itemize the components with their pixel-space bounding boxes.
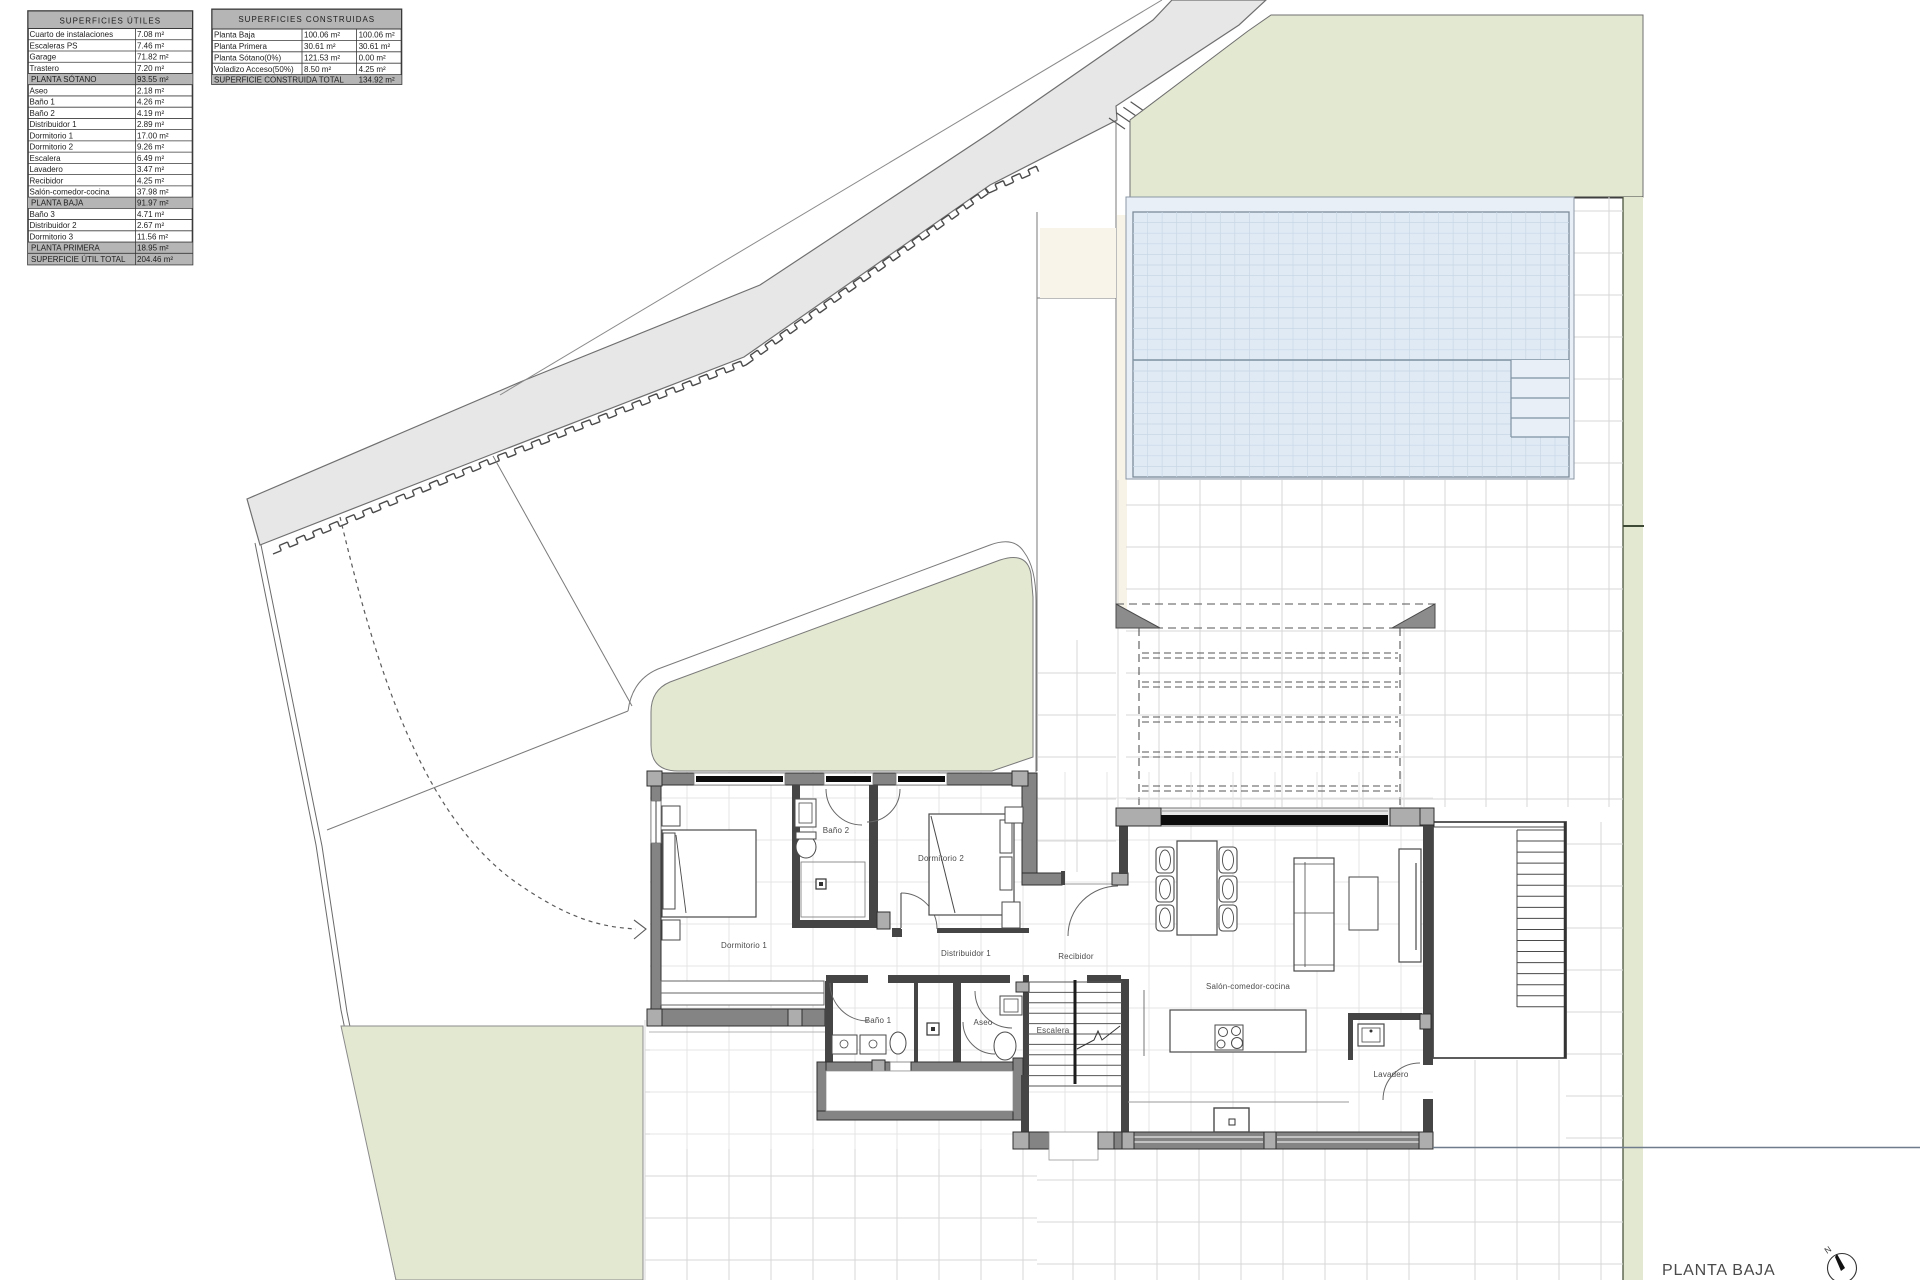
- svg-text:30.61 m²: 30.61 m²: [359, 42, 391, 51]
- svg-text:7.08 m²: 7.08 m²: [137, 30, 164, 39]
- svg-text:Distribuidor 1: Distribuidor 1: [30, 120, 78, 129]
- svg-text:Escalera: Escalera: [30, 154, 62, 163]
- svg-text:PLANTA PRIMERA: PLANTA PRIMERA: [31, 244, 100, 253]
- svg-text:0.00 m²: 0.00 m²: [359, 53, 386, 62]
- svg-text:Garage: Garage: [30, 53, 57, 62]
- svg-text:17.00 m²: 17.00 m²: [137, 131, 169, 140]
- svg-text:71.82 m²: 71.82 m²: [137, 53, 169, 62]
- svg-text:Voladizo Acceso(50%): Voladizo Acceso(50%): [214, 65, 294, 74]
- svg-text:6.49 m²: 6.49 m²: [137, 154, 164, 163]
- svg-text:Escaleras PS: Escaleras PS: [30, 41, 78, 50]
- svg-text:Dormitorio 3: Dormitorio 3: [30, 232, 74, 241]
- svg-text:4.25 m²: 4.25 m²: [137, 176, 164, 185]
- svg-text:100.06 m²: 100.06 m²: [359, 31, 395, 40]
- svg-text:100.06 m²: 100.06 m²: [304, 31, 340, 40]
- svg-text:PLANTA BAJA: PLANTA BAJA: [1662, 1262, 1775, 1279]
- svg-text:Distribuidor 1: Distribuidor 1: [941, 949, 991, 958]
- svg-text:11.56 m²: 11.56 m²: [137, 232, 168, 241]
- svg-text:Escalera: Escalera: [1037, 1026, 1070, 1035]
- svg-text:Dormitorio 2: Dormitorio 2: [918, 854, 964, 863]
- svg-text:SUPERFICIE ÚTIL TOTAL: SUPERFICIE ÚTIL TOTAL: [31, 255, 126, 264]
- svg-text:Recibidor: Recibidor: [30, 176, 64, 185]
- svg-text:37.98 m²: 37.98 m²: [137, 188, 169, 197]
- svg-text:Planta Baja: Planta Baja: [214, 31, 255, 40]
- svg-text:204.46 m²: 204.46 m²: [137, 255, 173, 264]
- svg-text:7.20 m²: 7.20 m²: [137, 64, 164, 73]
- svg-text:PLANTA SÓTANO: PLANTA SÓTANO: [31, 75, 97, 84]
- svg-text:Aseo: Aseo: [973, 1018, 992, 1027]
- svg-text:2.67 m²: 2.67 m²: [137, 221, 164, 230]
- svg-text:Salón-comedor-cocina: Salón-comedor-cocina: [1206, 982, 1290, 991]
- svg-text:Distribuidor 2: Distribuidor 2: [30, 221, 78, 230]
- svg-text:4.71 m²: 4.71 m²: [137, 210, 164, 219]
- svg-text:3.47 m²: 3.47 m²: [137, 165, 164, 174]
- svg-text:Planta Primera: Planta Primera: [214, 42, 267, 51]
- svg-text:8.50 m²: 8.50 m²: [304, 65, 331, 74]
- svg-text:134.92 m²: 134.92 m²: [359, 76, 395, 85]
- svg-text:Lavadero: Lavadero: [1374, 1070, 1409, 1079]
- svg-text:Recibidor: Recibidor: [1058, 952, 1094, 961]
- svg-text:91.97 m²: 91.97 m²: [137, 199, 169, 208]
- svg-text:121.53 m²: 121.53 m²: [304, 53, 340, 62]
- svg-text:SUPERFICIES CONSTRUIDAS: SUPERFICIES CONSTRUIDAS: [238, 15, 375, 24]
- svg-text:Baño 3: Baño 3: [30, 210, 56, 219]
- svg-text:Lavadero: Lavadero: [30, 165, 64, 174]
- svg-text:Salón-comedor-cocina: Salón-comedor-cocina: [30, 188, 111, 197]
- svg-text:7.46 m²: 7.46 m²: [137, 41, 164, 50]
- svg-text:SUPERFICIE CONSTRUIDA TOTAL: SUPERFICIE CONSTRUIDA TOTAL: [214, 76, 344, 85]
- svg-text:4.19 m²: 4.19 m²: [137, 109, 164, 118]
- svg-text:Baño 1: Baño 1: [865, 1016, 892, 1025]
- svg-text:4.26 m²: 4.26 m²: [137, 98, 164, 107]
- svg-text:93.55 m²: 93.55 m²: [137, 75, 169, 84]
- svg-text:18.95 m²: 18.95 m²: [137, 244, 169, 253]
- svg-text:Planta Sótano(0%): Planta Sótano(0%): [214, 53, 281, 62]
- svg-text:30.61 m²: 30.61 m²: [304, 42, 336, 51]
- svg-text:2.18 m²: 2.18 m²: [137, 86, 164, 95]
- svg-text:9.26 m²: 9.26 m²: [137, 143, 164, 152]
- svg-text:2.89 m²: 2.89 m²: [137, 120, 164, 129]
- svg-text:Cuarto de instalaciones: Cuarto de instalaciones: [30, 30, 114, 39]
- svg-text:Trastero: Trastero: [30, 64, 60, 73]
- svg-text:Baño 1: Baño 1: [30, 98, 56, 107]
- svg-text:Baño 2: Baño 2: [823, 826, 850, 835]
- svg-text:SUPERFICIES ÚTILES: SUPERFICIES ÚTILES: [59, 17, 161, 26]
- svg-text:Dormitorio 2: Dormitorio 2: [30, 143, 74, 152]
- svg-text:PLANTA BAJA: PLANTA BAJA: [31, 199, 84, 208]
- svg-text:4.25 m²: 4.25 m²: [359, 65, 386, 74]
- svg-text:Dormitorio 1: Dormitorio 1: [30, 131, 74, 140]
- svg-text:Aseo: Aseo: [30, 86, 49, 95]
- svg-text:Baño 2: Baño 2: [30, 109, 56, 118]
- svg-text:Dormitorio 1: Dormitorio 1: [721, 941, 767, 950]
